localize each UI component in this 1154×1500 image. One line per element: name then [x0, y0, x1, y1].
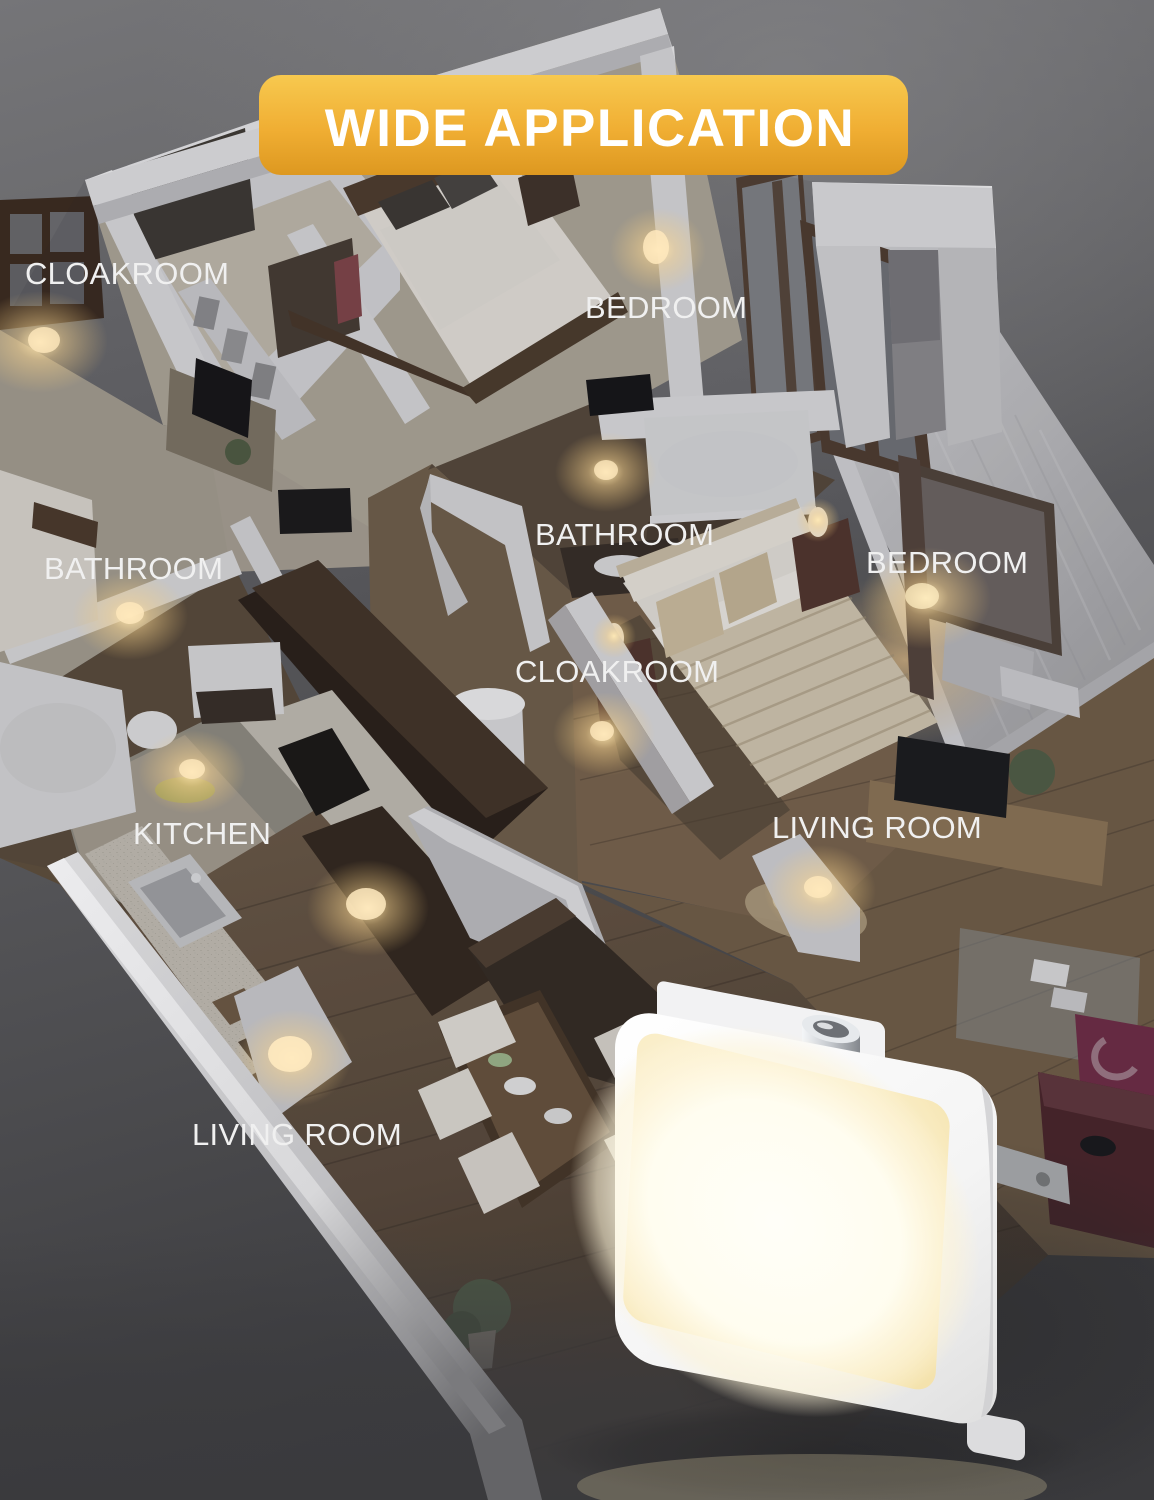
svg-text:KITCHEN: KITCHEN [133, 816, 271, 851]
svg-text:BEDROOM: BEDROOM [866, 545, 1028, 580]
svg-text:CLOAKROOM: CLOAKROOM [25, 256, 229, 291]
svg-text:BATHROOM: BATHROOM [44, 551, 223, 586]
svg-text:WIDE APPLICATION: WIDE APPLICATION [325, 99, 855, 158]
svg-text:CLOAKROOM: CLOAKROOM [515, 654, 719, 689]
svg-text:LIVING ROOM: LIVING ROOM [192, 1117, 402, 1152]
svg-text:BATHROOM: BATHROOM [535, 517, 714, 552]
svg-text:LIVING ROOM: LIVING ROOM [772, 810, 982, 845]
svg-text:BEDROOM: BEDROOM [585, 290, 747, 325]
